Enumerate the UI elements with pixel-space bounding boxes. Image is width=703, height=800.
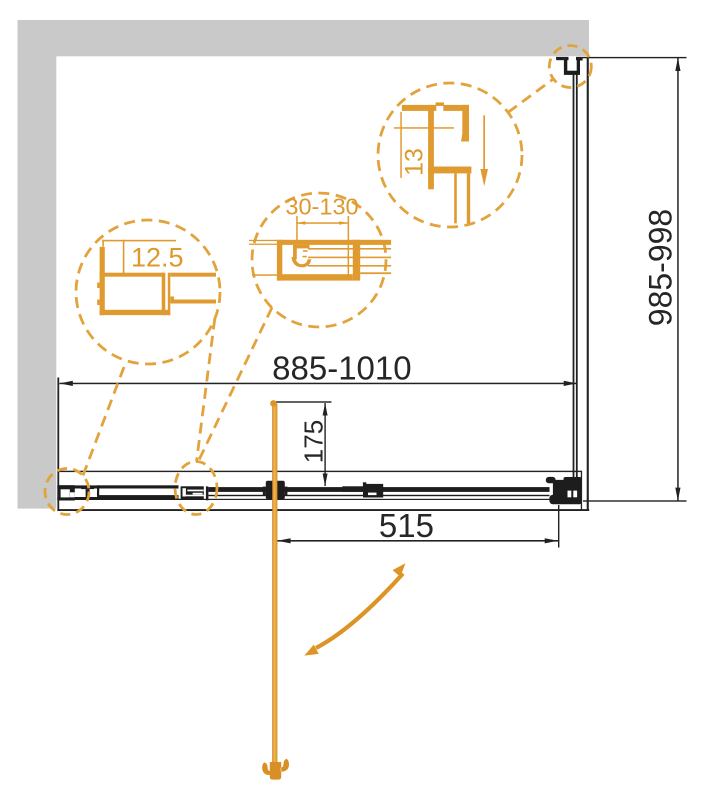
- svg-text:30-130: 30-130: [285, 194, 358, 220]
- svg-text:12.5: 12.5: [131, 243, 184, 273]
- svg-text:13: 13: [401, 148, 429, 176]
- svg-text:175: 175: [299, 420, 329, 463]
- svg-text:985-998: 985-998: [643, 209, 679, 326]
- svg-text:515: 515: [379, 507, 434, 544]
- svg-text:885-1010: 885-1010: [272, 350, 411, 387]
